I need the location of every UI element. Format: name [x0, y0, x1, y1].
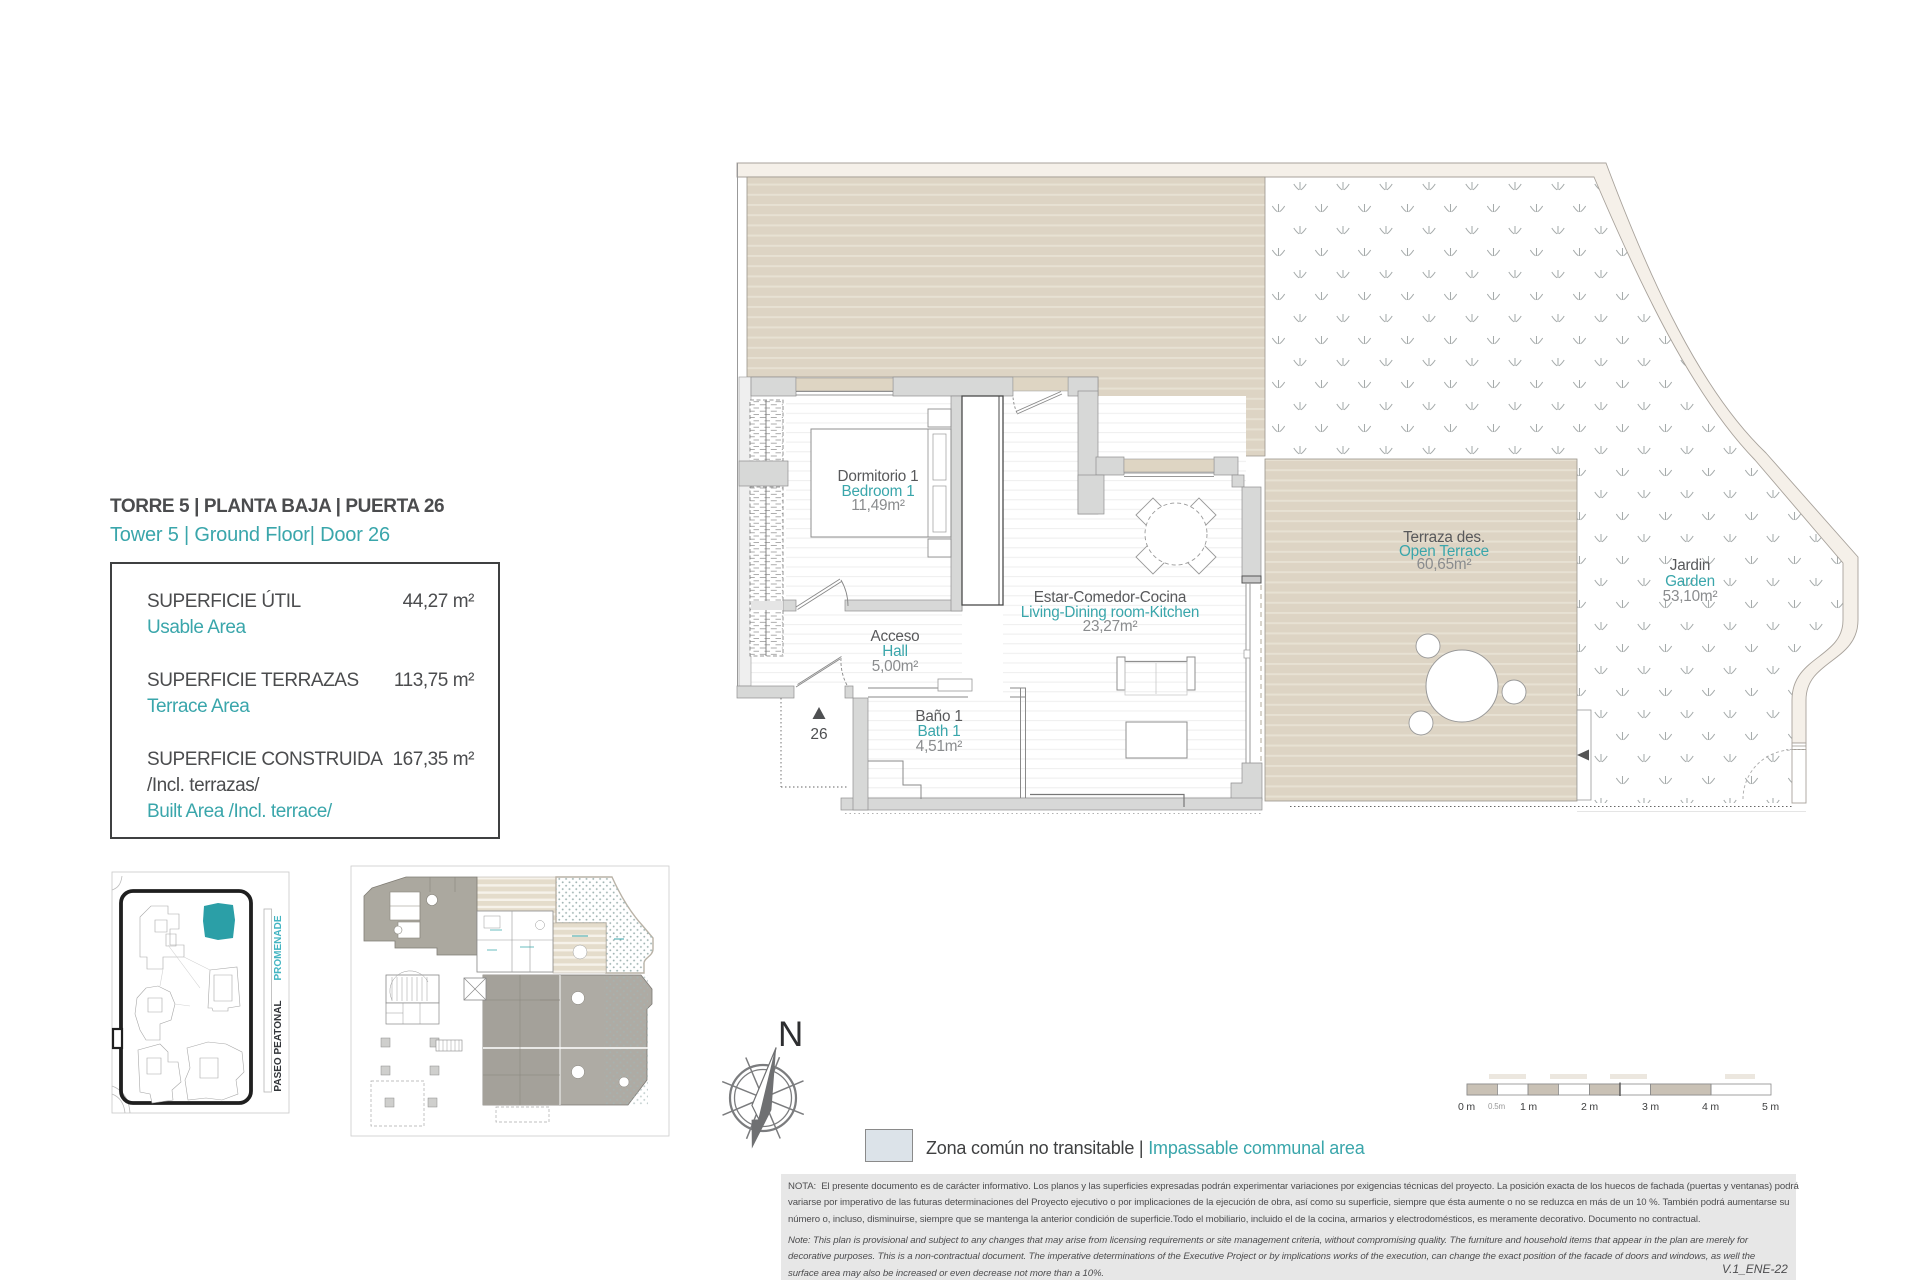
svg-text:26: 26: [810, 726, 827, 743]
svg-text:4 m: 4 m: [1702, 1101, 1719, 1113]
svg-text:PASEO PEATONAL: PASEO PEATONAL: [273, 1000, 284, 1091]
svg-text:3 m: 3 m: [1642, 1101, 1659, 1113]
svg-text:60,65m²: 60,65m²: [1417, 556, 1472, 573]
svg-text:PROMENADE: PROMENADE: [273, 915, 284, 980]
svg-text:23,27m²: 23,27m²: [1083, 618, 1138, 635]
svg-text:0.5m: 0.5m: [1488, 1102, 1506, 1111]
svg-text:2 m: 2 m: [1581, 1101, 1598, 1113]
svg-text:4,51m²: 4,51m²: [916, 738, 963, 755]
svg-text:5,00m²: 5,00m²: [872, 658, 919, 675]
svg-text:5 m: 5 m: [1762, 1101, 1779, 1113]
svg-text:0 m: 0 m: [1458, 1101, 1475, 1113]
svg-text:1 m: 1 m: [1520, 1101, 1537, 1113]
svg-text:53,10m²: 53,10m²: [1663, 588, 1718, 605]
svg-text:11,49m²: 11,49m²: [851, 497, 905, 514]
svg-text:N: N: [778, 1015, 803, 1054]
svg-text:Jardin: Jardin: [1670, 557, 1710, 574]
